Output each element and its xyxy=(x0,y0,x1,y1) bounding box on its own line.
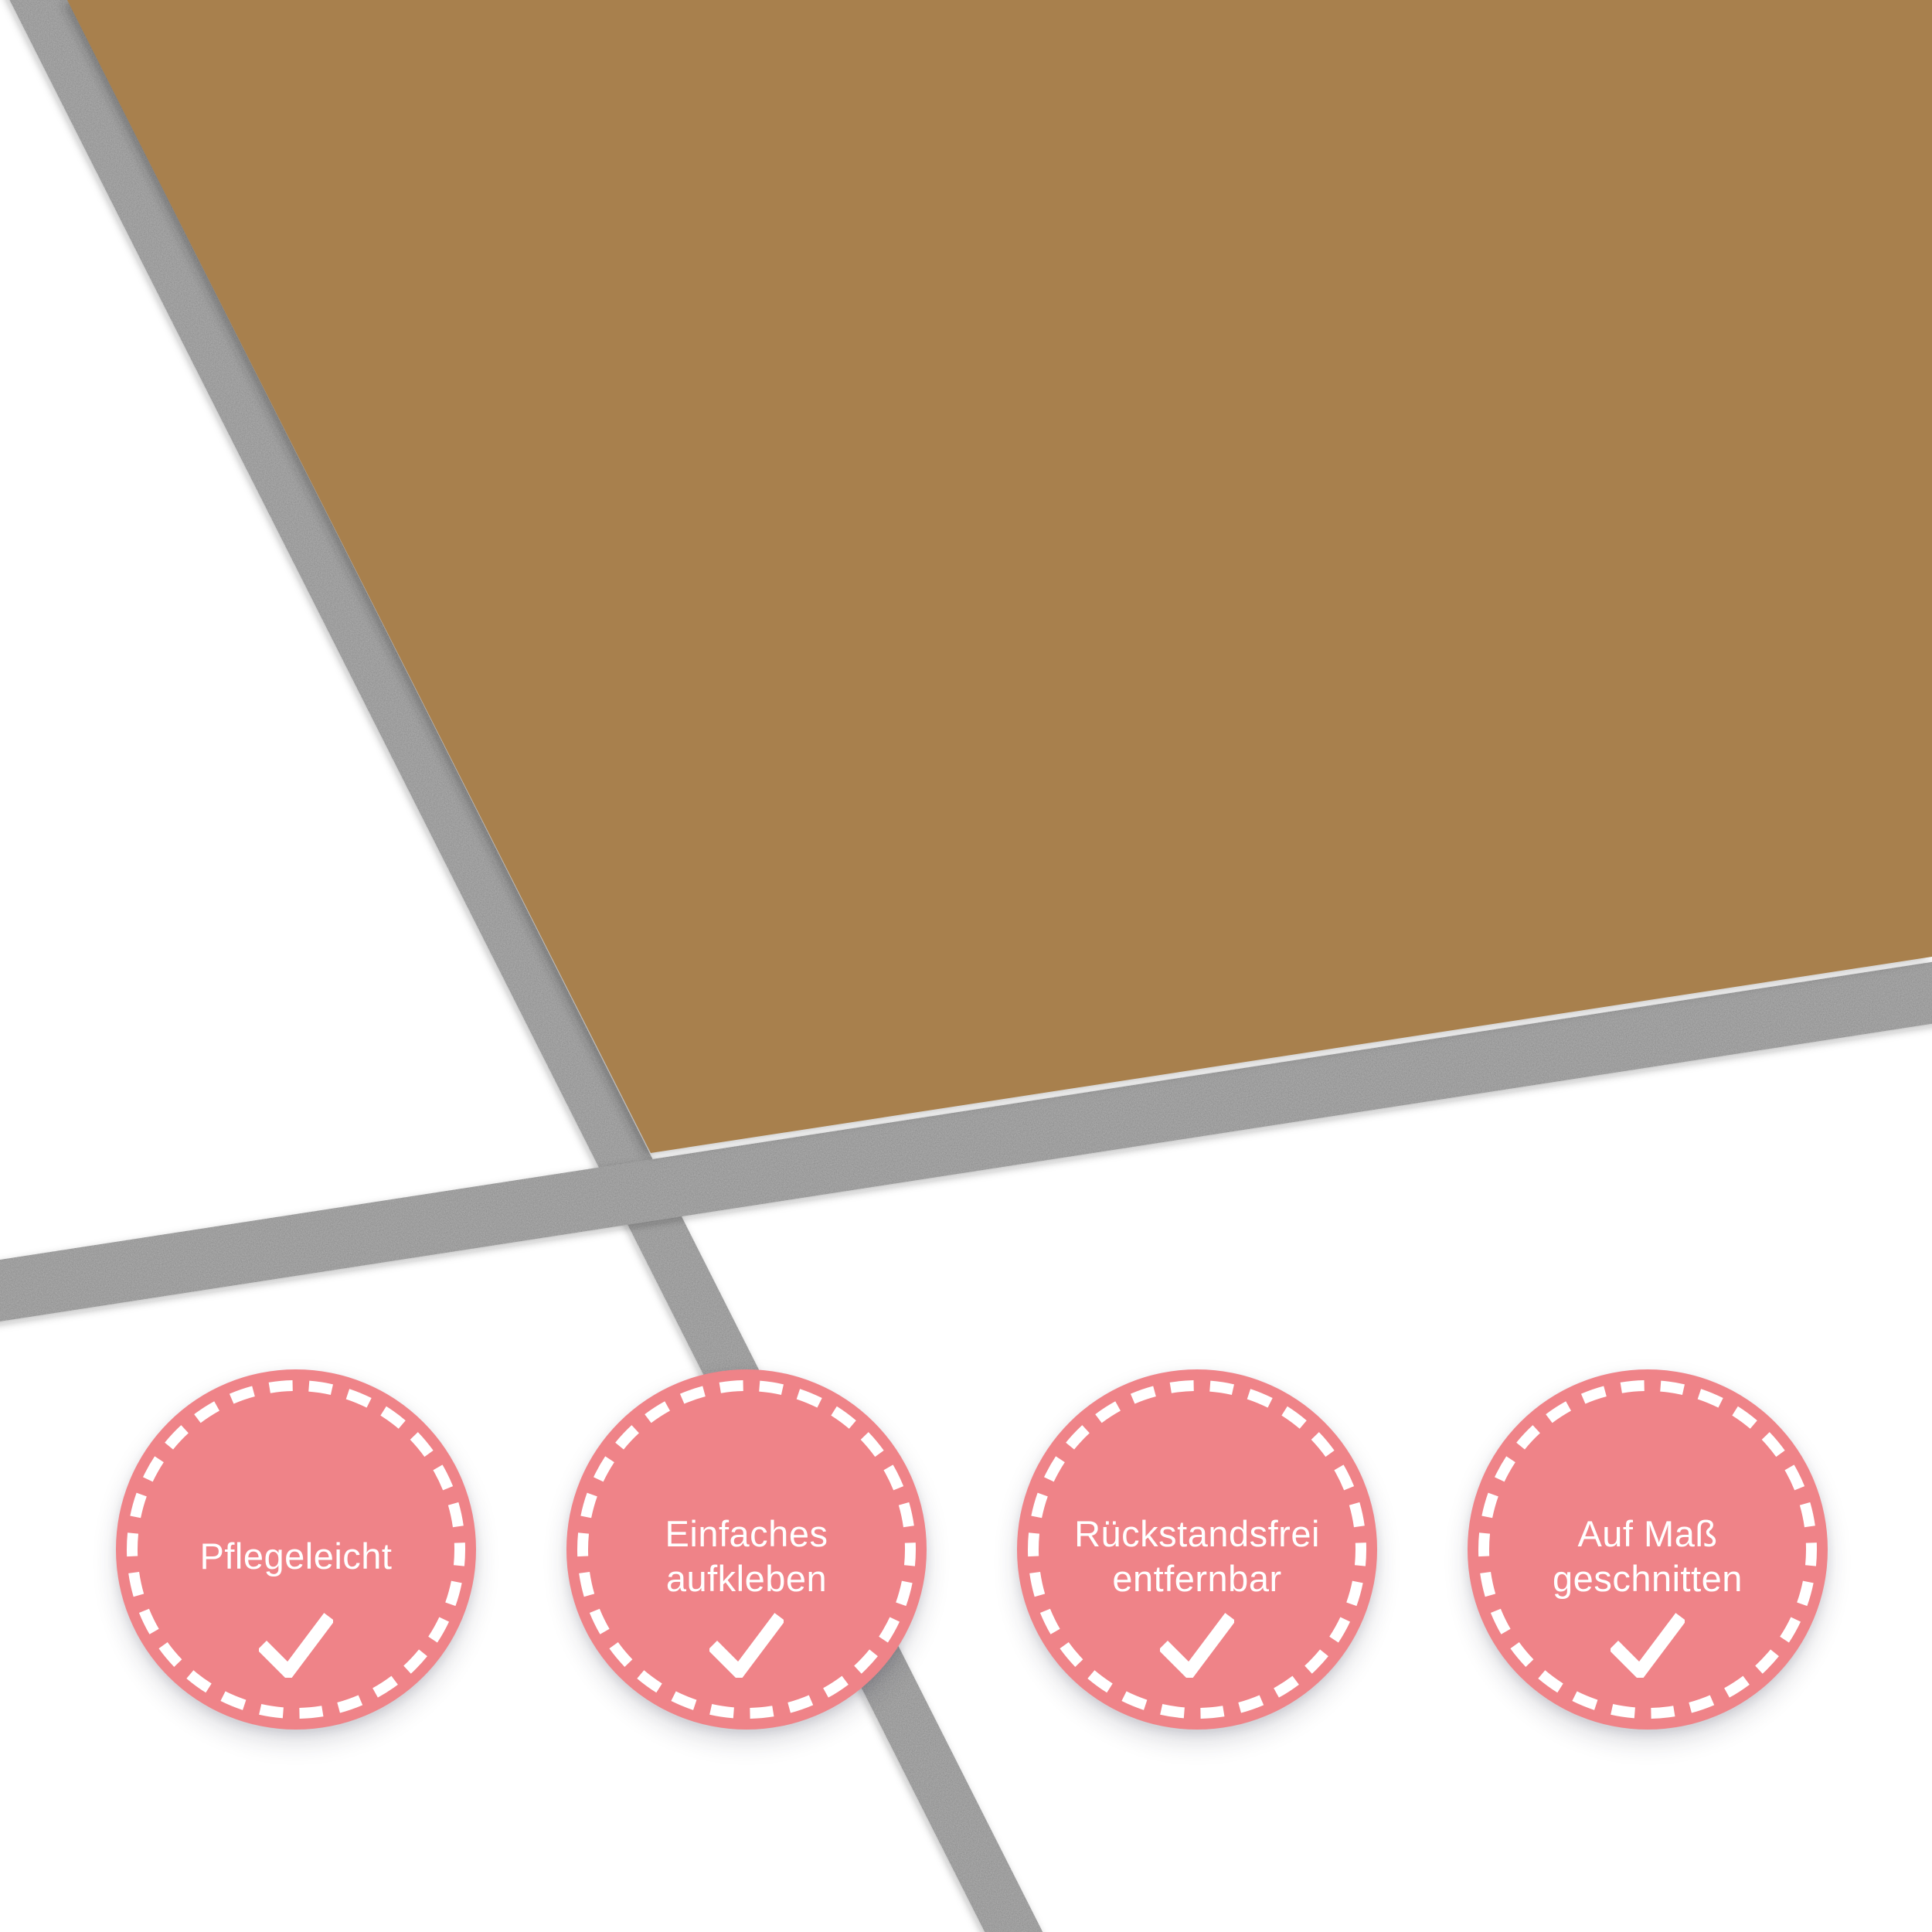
feature-badge-einfaches-aufkleben: Einfaches aufkleben xyxy=(566,1369,927,1730)
feature-badge-auf-mass-geschnitten: Auf Maß geschnitten xyxy=(1468,1369,1828,1730)
checkmark-icon xyxy=(1160,1613,1234,1678)
badge-line1: Einfaches xyxy=(665,1512,828,1556)
product-feature-image: Pflegeleicht Einfaches aufkleben xyxy=(0,0,1932,1932)
feature-badge-pflegeleicht: Pflegeleicht xyxy=(116,1369,476,1730)
badge-line2: aufkleben xyxy=(666,1556,827,1601)
checkmark-icon xyxy=(1611,1613,1685,1678)
badge-line2: geschnitten xyxy=(1553,1556,1743,1601)
badge-line1: Auf Maß xyxy=(1577,1512,1717,1556)
badge-line1: Pflegeleicht xyxy=(200,1534,393,1579)
badge-line2: entfernbar xyxy=(1112,1556,1281,1601)
checkmark-icon xyxy=(709,1613,784,1678)
badge-line1: Rückstandsfrei xyxy=(1074,1512,1320,1556)
feature-badge-rueckstandsfrei-entfernbar: Rückstandsfrei entfernbar xyxy=(1017,1369,1377,1730)
checkmark-icon xyxy=(259,1613,333,1678)
